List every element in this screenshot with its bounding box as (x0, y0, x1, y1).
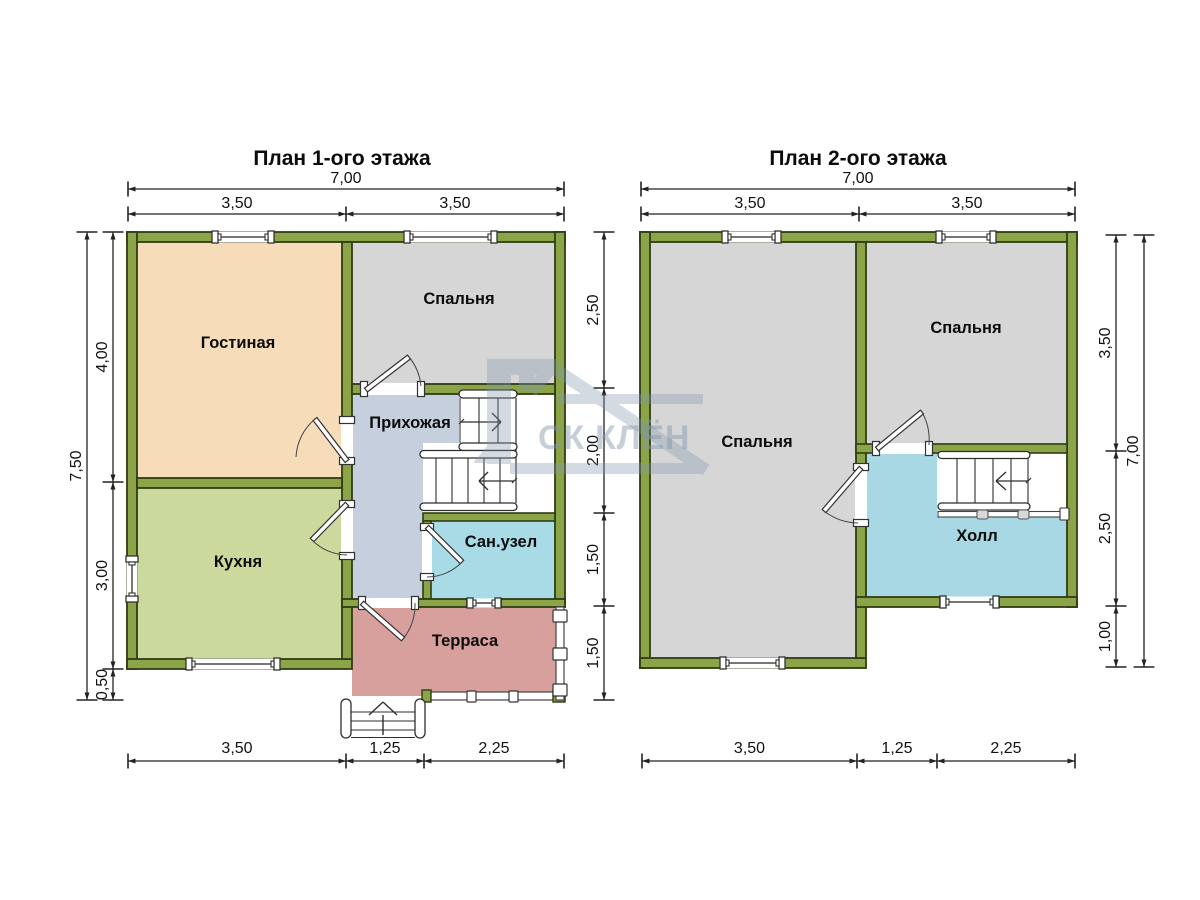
svg-text:Сан.узел: Сан.узел (465, 533, 537, 551)
svg-text:7,00: 7,00 (842, 170, 873, 187)
svg-text:1,50: 1,50 (585, 544, 602, 575)
svg-text:Спальня: Спальня (930, 319, 1001, 337)
svg-text:Спальня: Спальня (423, 290, 494, 308)
svg-text:1,00: 1,00 (1097, 621, 1114, 652)
svg-text:Гостиная: Гостиная (201, 334, 276, 352)
svg-text:3,50: 3,50 (734, 740, 765, 757)
svg-text:3,50: 3,50 (439, 195, 470, 212)
svg-text:СК КЛЁН: СК КЛЁН (538, 419, 690, 457)
svg-text:7,00: 7,00 (330, 170, 361, 187)
svg-text:Прихожая: Прихожая (369, 414, 450, 432)
svg-text:2,25: 2,25 (990, 740, 1021, 757)
svg-text:План 1-ого этажа: План 1-ого этажа (253, 147, 431, 170)
svg-text:Кухня: Кухня (214, 553, 262, 571)
svg-text:3,50: 3,50 (1097, 327, 1114, 358)
svg-text:План 2-ого этажа: План 2-ого этажа (769, 147, 947, 170)
svg-text:1,25: 1,25 (369, 740, 400, 757)
svg-text:Терраса: Терраса (432, 632, 499, 650)
svg-text:0,50: 0,50 (94, 669, 111, 700)
svg-text:Холл: Холл (956, 527, 997, 545)
svg-text:7,50: 7,50 (68, 450, 85, 481)
svg-text:3,00: 3,00 (94, 560, 111, 591)
svg-text:1,50: 1,50 (585, 637, 602, 668)
svg-text:2,50: 2,50 (1097, 513, 1114, 544)
svg-text:3,50: 3,50 (951, 195, 982, 212)
svg-text:7,00: 7,00 (1125, 435, 1142, 466)
svg-text:4,00: 4,00 (94, 341, 111, 372)
svg-text:Спальня: Спальня (721, 433, 792, 451)
svg-text:1,25: 1,25 (881, 740, 912, 757)
svg-text:3,50: 3,50 (734, 195, 765, 212)
svg-text:3,50: 3,50 (221, 740, 252, 757)
svg-text:2,50: 2,50 (585, 294, 602, 325)
svg-text:2,25: 2,25 (478, 740, 509, 757)
svg-text:3,50: 3,50 (221, 195, 252, 212)
